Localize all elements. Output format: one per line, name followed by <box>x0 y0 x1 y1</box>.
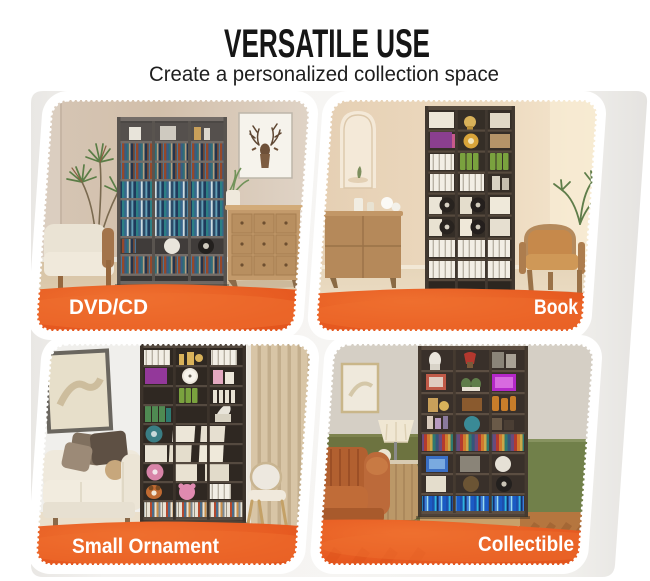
svg-text:Small Ornament: Small Ornament <box>72 534 219 558</box>
svg-text:VERSATILE USE: VERSATILE USE <box>224 22 430 66</box>
svg-text:Create a personalized collecti: Create a personalized collection space <box>149 63 499 86</box>
svg-text:DVD/CD: DVD/CD <box>69 295 148 319</box>
svg-text:Collectible: Collectible <box>478 532 574 556</box>
svg-text:Book: Book <box>534 295 578 319</box>
